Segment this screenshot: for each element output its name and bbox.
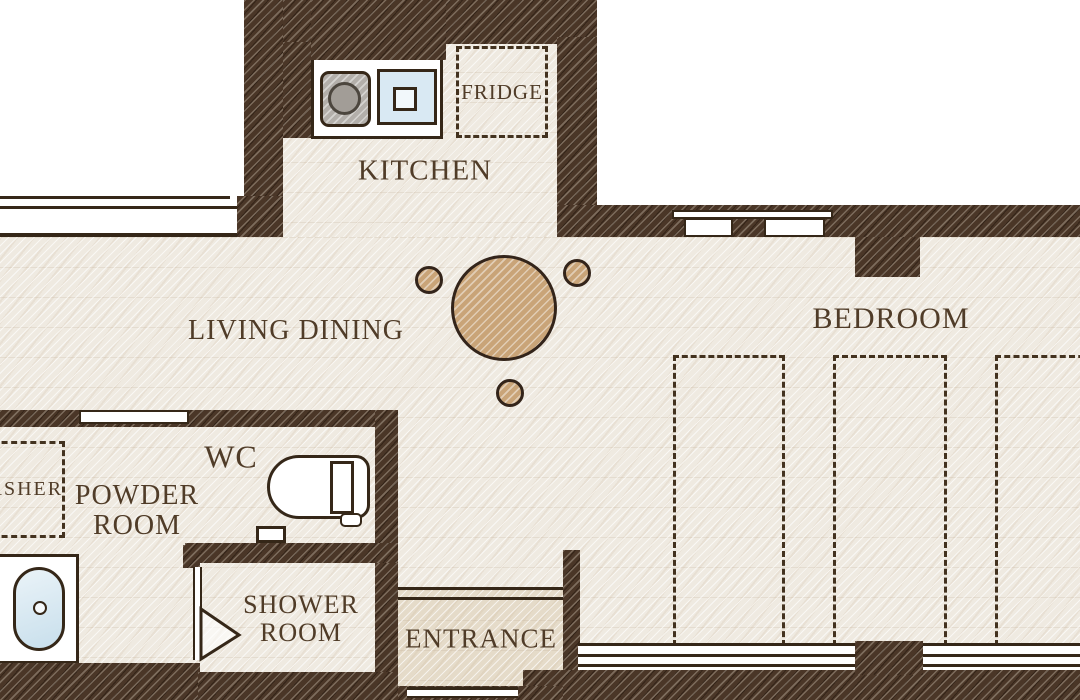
closet-area [673, 355, 785, 646]
wall [311, 0, 446, 60]
window-panel [684, 218, 733, 237]
living-dining-label: LIVING DINING [188, 316, 404, 346]
powder-room-label: POWDER ROOM [75, 481, 199, 541]
entrance-step-line [398, 587, 563, 590]
toilet-paper-holder [256, 526, 286, 543]
wc-label: WC [204, 440, 258, 475]
entrance-step-line [398, 597, 563, 600]
window-frame-line [0, 206, 237, 209]
window-frame-line [578, 664, 1080, 667]
powder-room-label-line1: POWDER [75, 481, 199, 511]
entrance-label: ENTRANCE [405, 624, 557, 653]
wall [523, 670, 1080, 700]
wall [557, 37, 597, 207]
bathtub-drain [33, 601, 47, 615]
wall [183, 545, 200, 568]
fridge-area: FRIDGE [456, 46, 548, 138]
fridge-label: FRIDGE [461, 81, 543, 104]
window-frame-line [0, 233, 237, 237]
stool [415, 266, 443, 294]
wall-pillar [855, 641, 923, 675]
dining-table [451, 255, 557, 361]
washer-label: WASHER [0, 479, 63, 501]
door-swing-icon [198, 605, 244, 663]
wall [198, 672, 398, 700]
toilet-bowl [267, 455, 370, 519]
window-frame-line [578, 654, 1080, 657]
toilet-tank [330, 461, 354, 514]
floor-plan: FRIDGE [0, 0, 1080, 700]
window-panel [764, 218, 825, 237]
wall [185, 543, 398, 563]
powder-room-label-line2: ROOM [75, 511, 199, 541]
stool [496, 379, 524, 407]
window [578, 643, 1080, 670]
wall [235, 196, 283, 237]
shower-room-label-line2: ROOM [243, 619, 359, 647]
closet-area [833, 355, 947, 646]
sink-basin [393, 87, 417, 111]
kitchen-label: KITCHEN [358, 155, 492, 186]
window-frame-line [0, 196, 230, 199]
wall [0, 663, 200, 700]
closet-area [995, 355, 1080, 646]
shower-room-label: SHOWER ROOM [243, 591, 359, 647]
powder-room-door [79, 410, 189, 424]
shower-room-label-line1: SHOWER [243, 591, 359, 619]
stove-burner-icon [328, 82, 361, 115]
window [0, 196, 237, 237]
wall [283, 42, 311, 138]
bedroom-label: BEDROOM [812, 303, 969, 335]
window-frame-line [578, 643, 1080, 646]
wall-pillar [855, 237, 920, 277]
stool [563, 259, 591, 287]
toilet-flush-bump [340, 513, 362, 527]
entrance-door [407, 687, 518, 698]
